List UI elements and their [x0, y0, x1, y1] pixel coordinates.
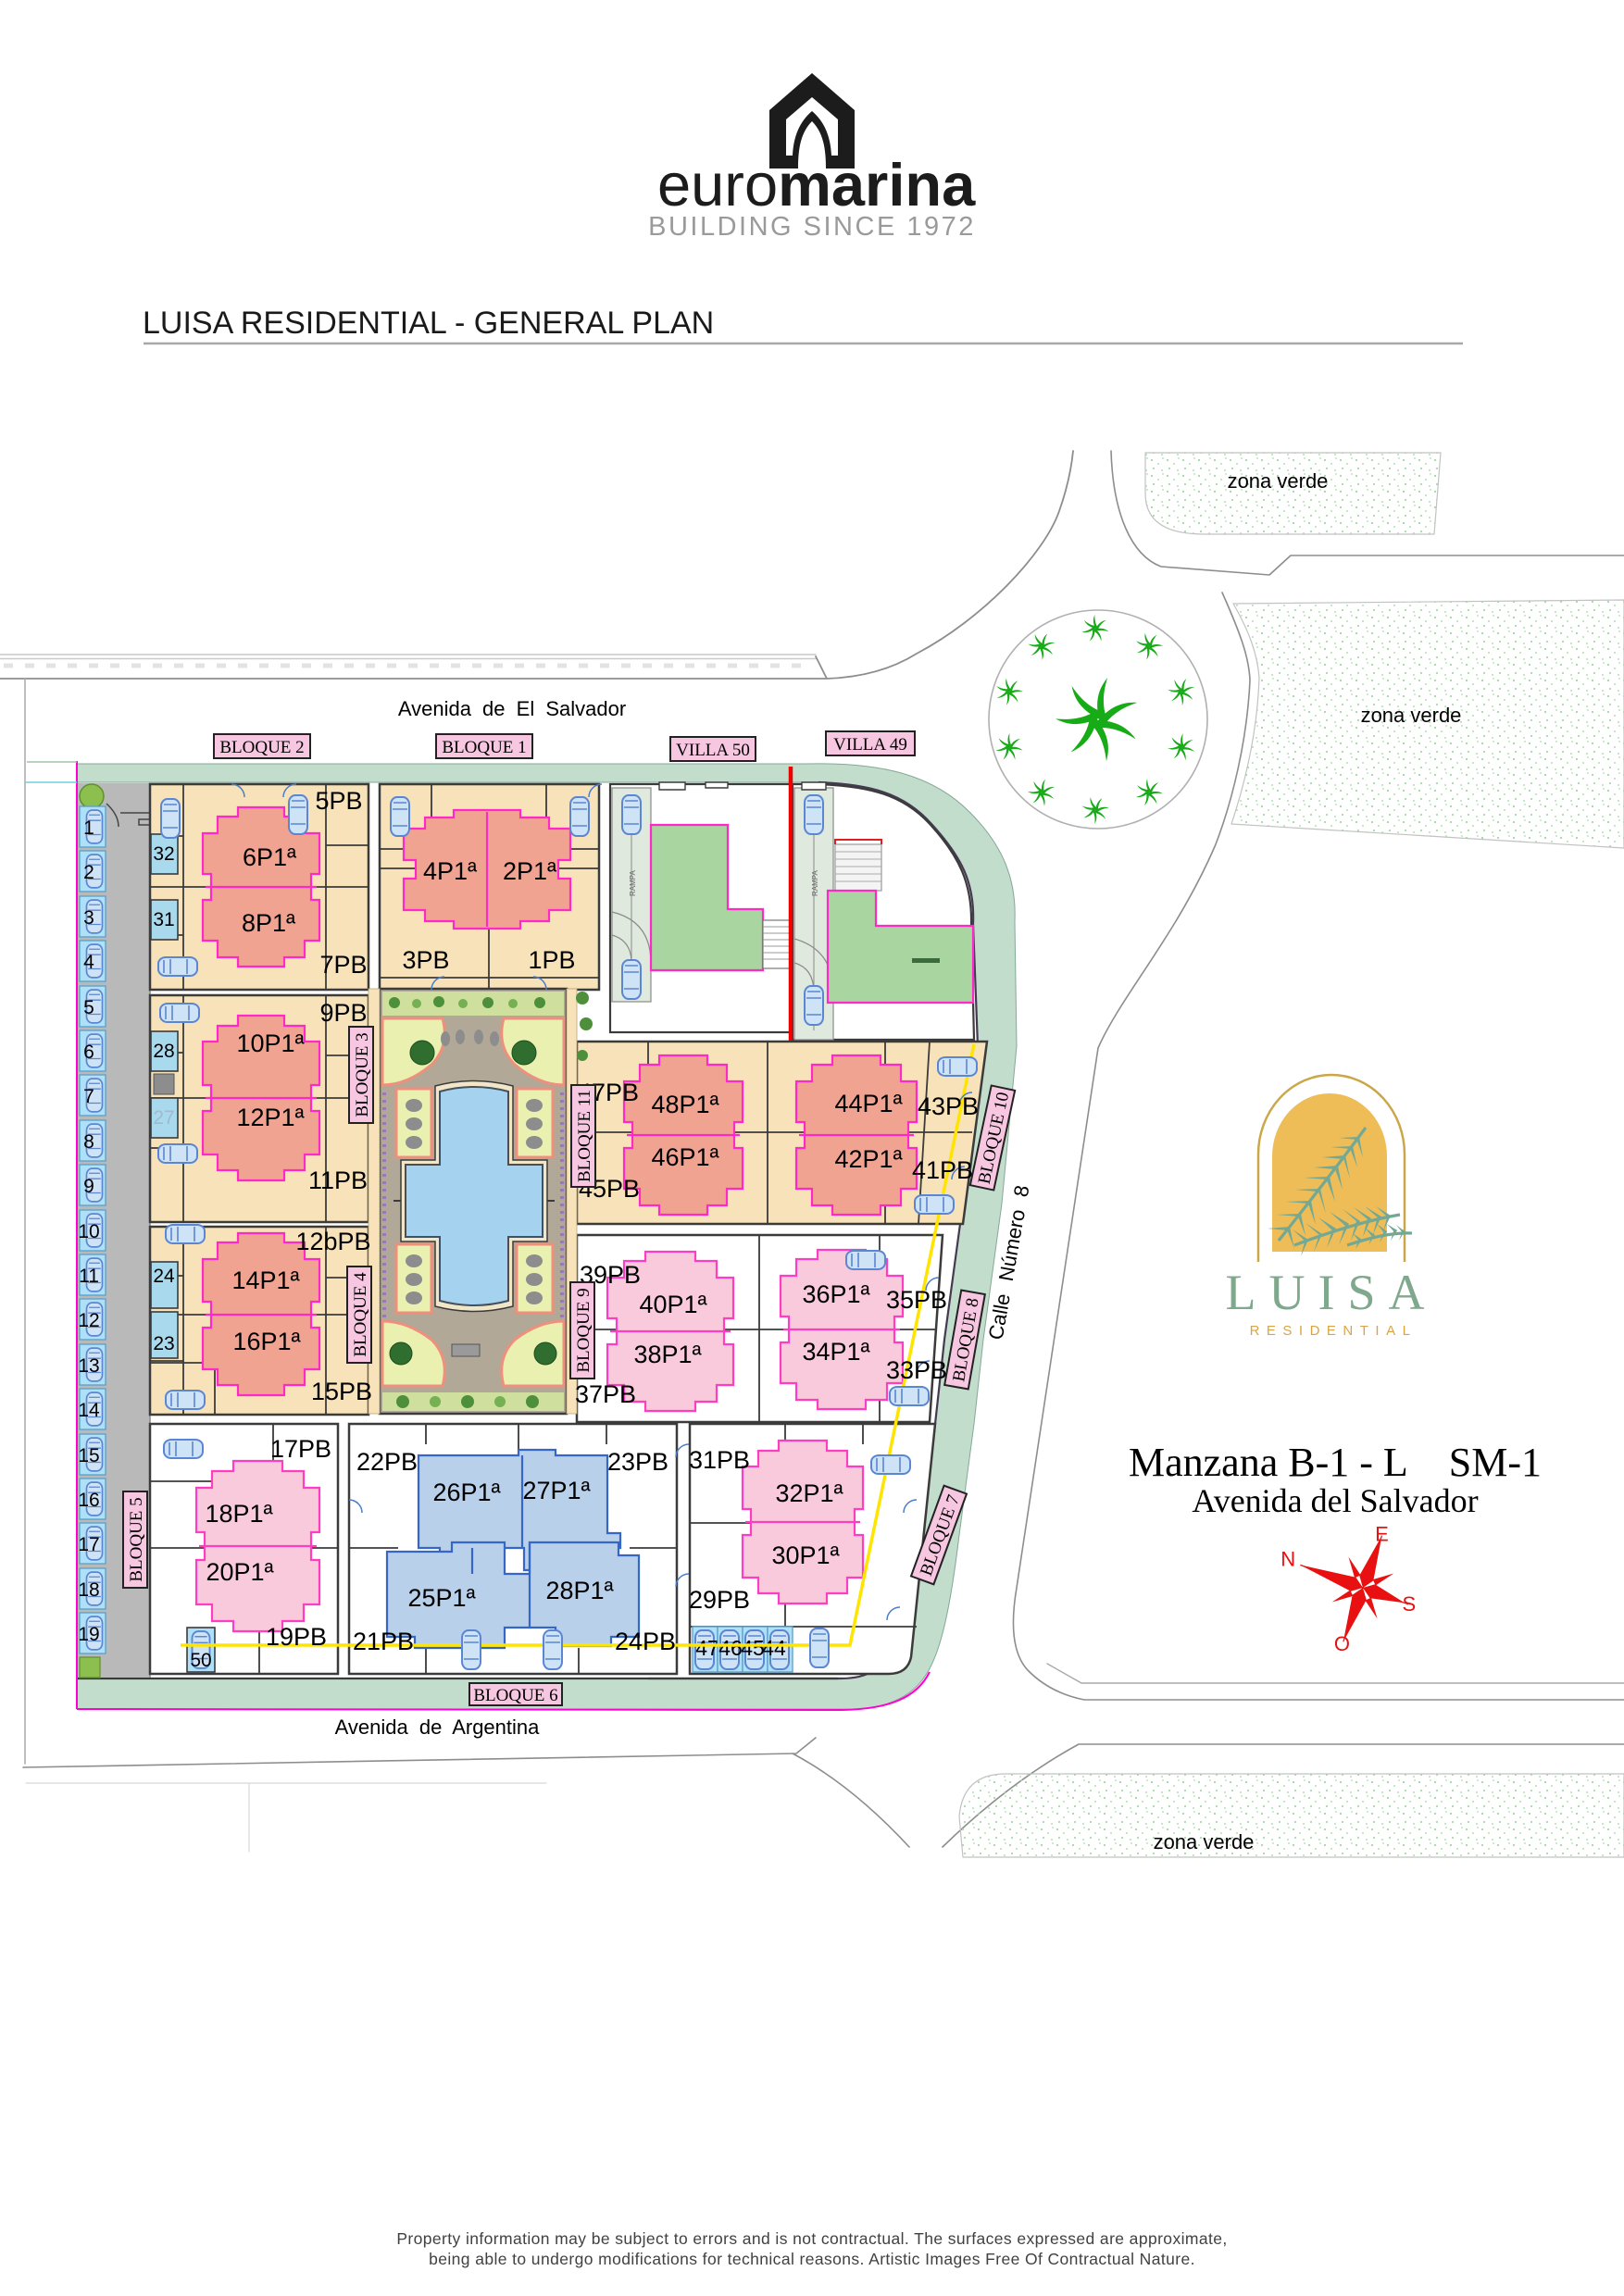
svg-text:45: 45: [741, 1636, 765, 1660]
svg-text:BLOQUE 3: BLOQUE 3: [353, 1032, 372, 1117]
svg-text:21PB: 21PB: [353, 1628, 414, 1655]
svg-text:8P1ª: 8P1ª: [242, 909, 296, 937]
svg-text:16: 16: [78, 1490, 99, 1511]
svg-text:12: 12: [78, 1310, 99, 1331]
svg-text:20P1ª: 20P1ª: [206, 1558, 274, 1586]
svg-text:35PB: 35PB: [886, 1286, 947, 1314]
svg-text:38P1ª: 38P1ª: [633, 1341, 702, 1368]
svg-text:17: 17: [78, 1534, 99, 1555]
svg-text:LUISA: LUISA: [1226, 1265, 1438, 1320]
svg-text:4P1ª: 4P1ª: [423, 857, 478, 885]
svg-text:24: 24: [153, 1266, 175, 1287]
svg-text:Property information may be su: Property information may be subject to e…: [396, 2229, 1227, 2248]
svg-text:22PB: 22PB: [356, 1448, 418, 1476]
svg-text:19PB: 19PB: [266, 1623, 327, 1651]
svg-text:12bPB: 12bPB: [295, 1228, 370, 1255]
svg-text:16P1ª: 16P1ª: [232, 1328, 301, 1355]
svg-text:7PB: 7PB: [319, 951, 367, 979]
svg-text:27P1ª: 27P1ª: [522, 1477, 591, 1504]
svg-text:S: S: [1402, 1592, 1416, 1616]
svg-text:44P1ª: 44P1ª: [834, 1090, 903, 1117]
svg-text:6P1ª: 6P1ª: [243, 843, 297, 871]
svg-text:47: 47: [695, 1636, 719, 1660]
svg-text:11PB: 11PB: [308, 1167, 368, 1194]
svg-text:15PB: 15PB: [311, 1378, 372, 1405]
svg-text:10P1ª: 10P1ª: [236, 1029, 305, 1057]
svg-text:23: 23: [153, 1333, 174, 1354]
svg-text:28: 28: [153, 1041, 174, 1062]
svg-text:3: 3: [83, 907, 94, 929]
svg-text:46: 46: [718, 1636, 743, 1660]
svg-text:O: O: [1334, 1632, 1350, 1655]
svg-text:12P1ª: 12P1ª: [236, 1104, 305, 1131]
svg-text:BLOQUE 1: BLOQUE 1: [442, 738, 526, 757]
svg-text:RAMPA: RAMPA: [811, 869, 819, 896]
svg-text:euromarina: euromarina: [657, 151, 976, 218]
svg-text:Avenida de El Salvador: Avenida de El Salvador: [398, 697, 626, 720]
svg-text:8: 8: [83, 1131, 94, 1153]
svg-text:BUILDING SINCE 1972: BUILDING SINCE 1972: [648, 212, 976, 242]
svg-text:BLOQUE 11: BLOQUE 11: [575, 1090, 594, 1182]
svg-text:zona verde: zona verde: [1361, 704, 1462, 727]
svg-text:24PB: 24PB: [615, 1628, 676, 1655]
svg-text:5PB: 5PB: [315, 787, 362, 815]
svg-text:9PB: 9PB: [319, 999, 367, 1027]
svg-text:23PB: 23PB: [607, 1448, 668, 1476]
svg-text:28P1ª: 28P1ª: [545, 1577, 614, 1604]
svg-text:zona verde: zona verde: [1228, 469, 1329, 493]
svg-text:LUISA RESIDENTIAL - GENERAL PL: LUISA RESIDENTIAL - GENERAL PLAN: [143, 306, 714, 341]
svg-text:BLOQUE 5: BLOQUE 5: [127, 1497, 146, 1581]
svg-text:RAMPA: RAMPA: [629, 869, 637, 896]
svg-text:N: N: [1280, 1548, 1295, 1571]
svg-text:9: 9: [83, 1176, 94, 1197]
svg-text:zona verde: zona verde: [1154, 1830, 1255, 1853]
svg-text:BLOQUE 2: BLOQUE 2: [219, 738, 304, 757]
svg-text:2P1ª: 2P1ª: [503, 857, 557, 885]
svg-text:37PB: 37PB: [575, 1380, 636, 1408]
svg-text:14P1ª: 14P1ª: [231, 1267, 300, 1294]
svg-text:BLOQUE 6: BLOQUE 6: [473, 1686, 557, 1705]
svg-text:31: 31: [153, 909, 174, 930]
svg-text:4: 4: [83, 952, 94, 973]
svg-text:34P1ª: 34P1ª: [802, 1338, 870, 1366]
svg-text:36P1ª: 36P1ª: [802, 1280, 870, 1308]
svg-text:2: 2: [83, 862, 94, 883]
svg-text:29PB: 29PB: [689, 1586, 750, 1614]
svg-text:BLOQUE 9: BLOQUE 9: [574, 1288, 593, 1372]
svg-text:being able to undergo modifica: being able to undergo modifications for …: [429, 2250, 1195, 2268]
svg-text:26P1ª: 26P1ª: [432, 1479, 501, 1506]
svg-text:7: 7: [83, 1086, 94, 1107]
svg-text:14: 14: [78, 1400, 100, 1421]
svg-text:6: 6: [83, 1042, 94, 1063]
svg-text:Avenida de Argentina: Avenida de Argentina: [335, 1716, 541, 1739]
svg-text:48P1ª: 48P1ª: [651, 1091, 719, 1118]
svg-text:30P1ª: 30P1ª: [771, 1541, 840, 1569]
svg-text:18P1ª: 18P1ª: [205, 1500, 273, 1528]
svg-text:18: 18: [78, 1579, 99, 1601]
svg-text:25P1ª: 25P1ª: [407, 1584, 476, 1612]
svg-text:32: 32: [153, 843, 174, 865]
svg-text:10: 10: [78, 1221, 99, 1242]
svg-text:33PB: 33PB: [886, 1356, 947, 1384]
svg-text:BLOQUE 4: BLOQUE 4: [351, 1272, 370, 1357]
svg-text:13: 13: [78, 1355, 99, 1377]
svg-text:VILLA 49: VILLA 49: [833, 735, 907, 755]
svg-text:46P1ª: 46P1ª: [651, 1143, 719, 1171]
svg-text:15: 15: [78, 1445, 99, 1466]
svg-text:3PB: 3PB: [402, 946, 449, 974]
svg-text:50: 50: [190, 1650, 211, 1671]
svg-text:1: 1: [83, 817, 94, 839]
svg-text:32P1ª: 32P1ª: [775, 1479, 843, 1507]
svg-text:E: E: [1375, 1523, 1389, 1546]
svg-text:5: 5: [83, 997, 94, 1018]
svg-text:31PB: 31PB: [689, 1446, 750, 1474]
svg-text:VILLA 50: VILLA 50: [676, 741, 750, 760]
svg-text:27: 27: [153, 1107, 174, 1129]
svg-text:19: 19: [78, 1624, 99, 1645]
svg-text:11: 11: [79, 1266, 99, 1287]
svg-text:40P1ª: 40P1ª: [639, 1291, 707, 1318]
svg-text:RESIDENTIAL: RESIDENTIAL: [1250, 1323, 1418, 1339]
svg-text:1PB: 1PB: [528, 946, 575, 974]
svg-text:43PB: 43PB: [918, 1092, 979, 1120]
svg-text:42P1ª: 42P1ª: [834, 1145, 903, 1173]
svg-text:41PB: 41PB: [912, 1156, 973, 1184]
svg-text:Manzana B-1 - L SM-1: Manzana B-1 - L SM-1: [1129, 1440, 1542, 1485]
svg-text:44: 44: [762, 1636, 786, 1660]
svg-text:17PB: 17PB: [270, 1435, 331, 1463]
svg-text:Avenida del Salvador: Avenida del Salvador: [1192, 1482, 1478, 1519]
